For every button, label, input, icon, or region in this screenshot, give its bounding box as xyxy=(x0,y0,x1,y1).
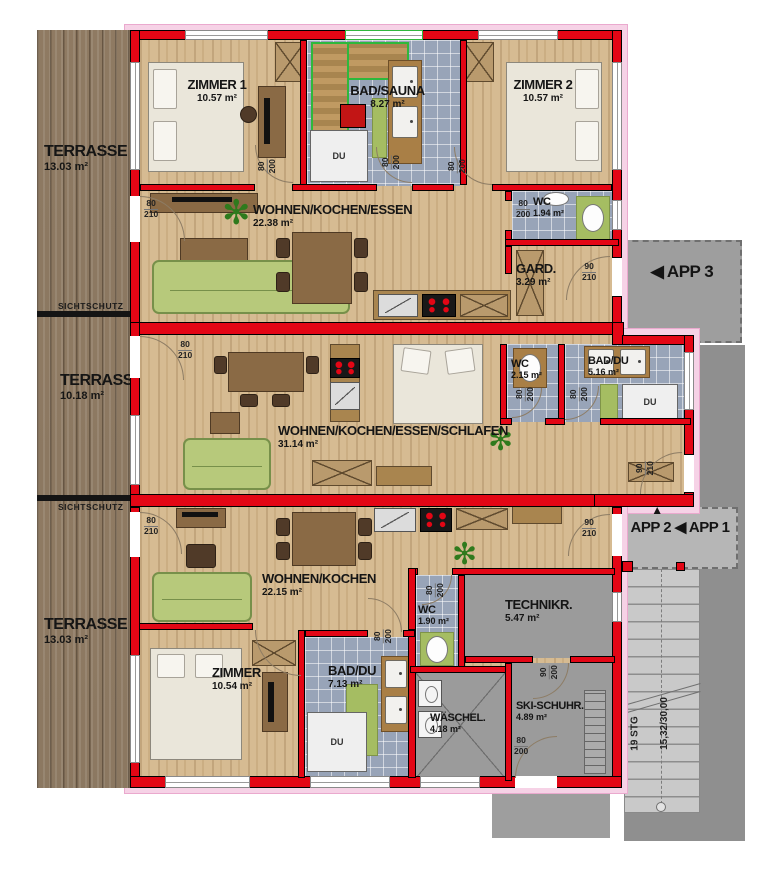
kitchen-cabinet xyxy=(456,508,508,530)
room-label-bad-app1: BAD/DU 7.13 m² xyxy=(328,664,376,690)
sideboard xyxy=(376,466,432,486)
wall xyxy=(130,322,624,335)
chair xyxy=(354,238,368,258)
wall xyxy=(505,239,619,246)
window xyxy=(310,776,390,788)
door-dim-80-200: 80200 xyxy=(447,157,468,175)
sideboard xyxy=(312,460,372,486)
door-dim-90-210: 90210 xyxy=(580,262,598,283)
armchair xyxy=(186,544,216,568)
window xyxy=(130,62,140,170)
stair-center-line xyxy=(661,569,662,809)
wall xyxy=(492,184,612,191)
door-dim-80-200: 80200 xyxy=(257,157,278,175)
wall xyxy=(505,246,512,274)
window xyxy=(612,200,622,230)
window xyxy=(612,62,622,170)
wall xyxy=(408,568,416,630)
desk-chair xyxy=(240,106,257,123)
wall xyxy=(505,663,512,781)
wall xyxy=(452,568,615,575)
cooktop xyxy=(330,358,360,378)
chair xyxy=(306,356,319,374)
window xyxy=(130,655,140,763)
door-dim-80-200: 80200 xyxy=(515,385,536,403)
tv xyxy=(182,512,218,517)
tv xyxy=(264,98,270,144)
kitchen-sink xyxy=(378,294,418,317)
toilet xyxy=(582,204,604,232)
coffee-table xyxy=(210,412,240,434)
kitchen-sink xyxy=(374,508,416,532)
room-label-zimmer1: ZIMMER 1 10.57 m² xyxy=(152,78,282,104)
terrace-1-label: TERRASSE 13.03 m² xyxy=(44,143,127,173)
door-dim-90-210: 90210 xyxy=(580,518,598,539)
wall xyxy=(305,630,368,637)
chair xyxy=(240,394,258,407)
door-opening xyxy=(130,336,140,378)
washing-machine xyxy=(418,680,442,707)
plant-icon xyxy=(222,196,251,230)
floor-plan: TERRASSE 13.03 m² SICHTSCHUTZ TERRASSE 1… xyxy=(0,0,768,878)
room-label-bad-sauna: BAD/SAUNA 8.27 m² xyxy=(325,84,450,110)
room-label-waesche: WÄSCHEL. 4.18 m² xyxy=(430,712,485,734)
wall xyxy=(292,184,377,191)
wall xyxy=(403,630,415,637)
chair xyxy=(276,238,290,258)
door-dim-80-210: 80210 xyxy=(176,340,194,361)
dining-table xyxy=(292,232,352,304)
door-dim-80-200: 80200 xyxy=(569,385,590,403)
door-dim-80-210: 80210 xyxy=(142,199,160,220)
wall xyxy=(465,656,533,663)
washbasin xyxy=(385,660,407,688)
toilet xyxy=(426,636,448,663)
wall xyxy=(130,494,624,507)
chair xyxy=(276,518,290,536)
room-label-wohnen-app1: WOHNEN/KOCHEN 22.15 m² xyxy=(262,572,376,598)
shower: DU xyxy=(622,384,678,420)
sign-app3: ◀ APP 3 xyxy=(622,262,742,282)
door-opening xyxy=(612,258,622,296)
wall xyxy=(140,184,255,191)
washbasin xyxy=(392,106,418,138)
cooktop xyxy=(422,294,456,317)
wall-stub xyxy=(622,561,633,572)
door-opening xyxy=(130,512,140,557)
cooktop xyxy=(420,508,452,532)
dining-table xyxy=(292,512,356,566)
bath-mat xyxy=(600,384,618,420)
ski-rack xyxy=(584,690,606,774)
room-label-wc-app3: WC 1.94 m² xyxy=(533,196,564,218)
room-label-zimmer-app1: ZIMMER 10.54 m² xyxy=(212,666,261,692)
wall xyxy=(558,344,565,422)
desk xyxy=(262,672,288,732)
window xyxy=(478,30,558,40)
wardrobe xyxy=(464,42,494,82)
plant-icon xyxy=(452,540,477,570)
entry-pad-south xyxy=(492,788,610,838)
room-label-gard: GARD. 3.29 m² xyxy=(516,262,556,288)
sideboard xyxy=(176,508,226,528)
room-label-bad-app2: BAD/DU 5.16 m² xyxy=(588,355,628,377)
terrace-3-label: TERRASSE 13.03 m² xyxy=(44,616,127,646)
shower: DU xyxy=(307,712,367,772)
stair-newel xyxy=(656,802,666,812)
wall xyxy=(545,418,565,425)
chair xyxy=(214,356,227,374)
window xyxy=(185,30,268,40)
terrace-2 xyxy=(37,317,130,495)
room-label-wc-app1: WC 1.90 m² xyxy=(418,604,449,626)
door-dim-90-200: 90200 xyxy=(539,663,560,681)
kitchen-sink xyxy=(330,382,360,410)
wall-stub xyxy=(676,562,685,571)
concrete-below-stairs xyxy=(624,813,700,841)
door-dim-80-200: 80200 xyxy=(373,627,394,645)
wall xyxy=(408,630,416,778)
window xyxy=(684,352,694,410)
window xyxy=(130,415,140,485)
washbasin xyxy=(385,696,407,724)
door-opening xyxy=(684,455,694,492)
sofa xyxy=(183,438,271,490)
window xyxy=(165,776,250,788)
wall xyxy=(139,623,253,630)
shower: DU xyxy=(310,130,368,182)
door-dim-80-210: 80210 xyxy=(142,516,160,537)
room-label-wohnen-app2: WOHNEN/KOCHEN/ESSEN/SCHLAFEN 31.14 m² xyxy=(278,424,508,450)
chair xyxy=(358,542,372,560)
room-label-wc-app2: WC 2.15 m² xyxy=(511,358,542,380)
kitchen-cabinet xyxy=(460,294,508,317)
wall xyxy=(412,184,454,191)
chair xyxy=(276,272,290,292)
door-dim-80-200: 80200 xyxy=(425,581,446,599)
door-dim-80-200: 80200 xyxy=(514,199,532,220)
window xyxy=(345,30,423,40)
privacy-screen-1-label: SICHTSCHUTZ xyxy=(58,301,123,311)
wall xyxy=(505,191,512,201)
tv xyxy=(268,682,274,722)
sign-app2-app1: APP 2 ◀ APP 1 xyxy=(616,518,744,536)
chair xyxy=(276,542,290,560)
chair xyxy=(354,272,368,292)
dining-table xyxy=(228,352,304,392)
door-dim-80-200: 80200 xyxy=(512,736,530,757)
room-label-technik: TECHNIKR. 5.47 m² xyxy=(505,598,572,624)
bed xyxy=(393,344,483,424)
privacy-screen-2-label: SICHTSCHUTZ xyxy=(58,502,123,512)
wall xyxy=(410,666,510,673)
wall xyxy=(300,40,307,185)
window xyxy=(420,776,480,788)
chair xyxy=(272,394,290,407)
wall xyxy=(458,575,465,670)
room-label-ski: SKI-SCHUHR. 4.89 m² xyxy=(516,700,584,722)
room-label-wohnen-app3: WOHNEN/KOCHEN/ESSEN 22.38 m² xyxy=(253,203,412,229)
chair xyxy=(358,518,372,536)
door-opening xyxy=(130,196,140,242)
wall xyxy=(570,656,615,663)
stair-steps-label: 19 STG xyxy=(630,716,641,750)
window xyxy=(612,592,622,622)
stair-dimension-label: 15,32/30,00 xyxy=(659,697,670,750)
sofa xyxy=(152,572,252,622)
room-label-zimmer2: ZIMMER 2 10.57 m² xyxy=(478,78,608,104)
staircase xyxy=(624,569,700,813)
wall xyxy=(600,418,691,425)
door-dim-80-200: 80200 xyxy=(381,153,402,171)
kitchen-cabinet xyxy=(512,506,562,524)
up-arrow-icon: ▲ xyxy=(622,503,692,517)
concrete-strip-right xyxy=(694,345,745,507)
door-dim-90-210: 90210 xyxy=(635,459,656,477)
wall xyxy=(500,344,507,422)
